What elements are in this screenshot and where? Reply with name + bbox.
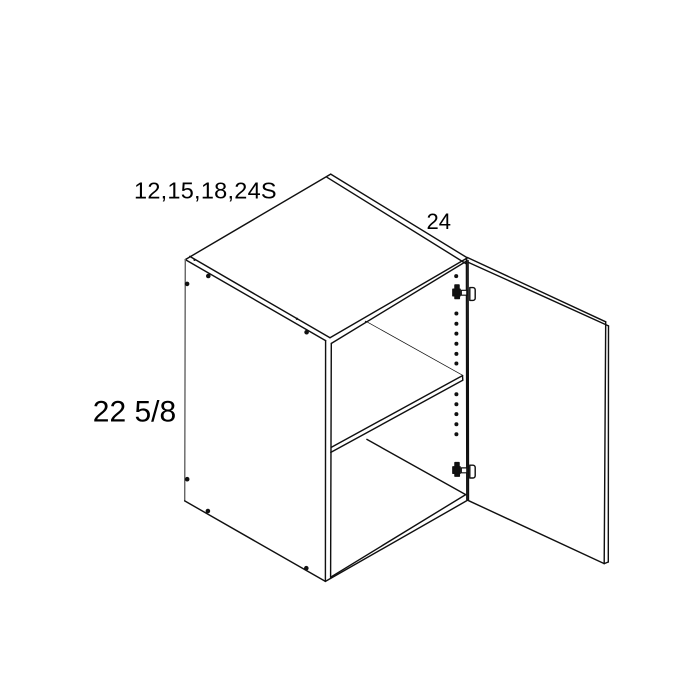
svg-text:22 5/8: 22 5/8: [93, 395, 176, 428]
svg-text:24: 24: [427, 209, 451, 234]
svg-text:12,15,18,24S: 12,15,18,24S: [134, 178, 277, 204]
